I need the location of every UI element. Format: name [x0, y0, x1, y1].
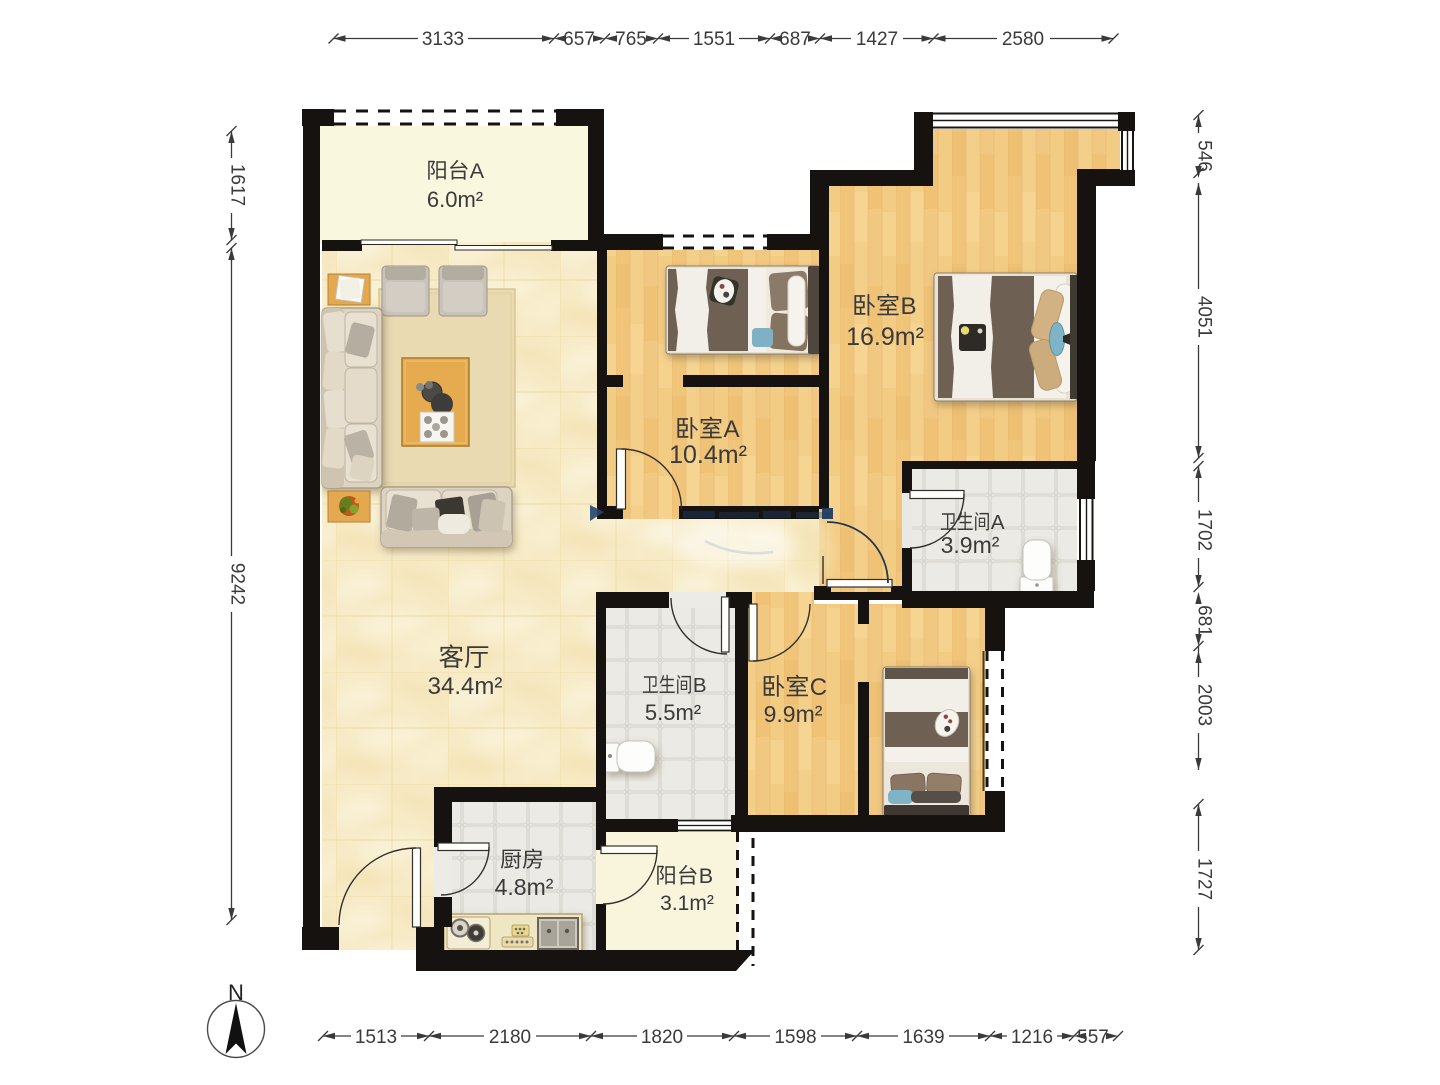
svg-text:A: A: [724, 416, 740, 443]
svg-text:A: A: [991, 511, 1005, 534]
svg-text:1820: 1820: [641, 1027, 683, 1048]
svg-text:546: 546: [1194, 140, 1215, 172]
svg-text:2580: 2580: [1002, 29, 1044, 50]
svg-text:1427: 1427: [856, 29, 898, 50]
svg-text:5.5m²: 5.5m²: [645, 700, 701, 725]
svg-text:1702: 1702: [1194, 509, 1215, 551]
svg-text:6.0m²: 6.0m²: [427, 187, 483, 212]
svg-text:765: 765: [615, 29, 647, 50]
svg-text:681: 681: [1194, 605, 1215, 637]
svg-text:1727: 1727: [1194, 858, 1215, 900]
svg-text:1551: 1551: [693, 29, 735, 50]
svg-text:687: 687: [779, 29, 811, 50]
svg-text:9242: 9242: [227, 563, 248, 605]
svg-text:2180: 2180: [489, 1027, 531, 1048]
svg-text:4051: 4051: [1194, 296, 1215, 338]
svg-text:1617: 1617: [227, 164, 248, 206]
svg-text:1598: 1598: [774, 1027, 816, 1048]
svg-text:1216: 1216: [1011, 1027, 1053, 1048]
svg-text:4.8m²: 4.8m²: [495, 874, 554, 900]
svg-text:B: B: [699, 864, 713, 888]
svg-text:1513: 1513: [355, 1027, 397, 1048]
svg-text:A: A: [470, 159, 485, 183]
svg-text:34.4m²: 34.4m²: [428, 673, 503, 700]
svg-text:B: B: [901, 293, 917, 320]
svg-text:3.1m²: 3.1m²: [660, 892, 714, 915]
svg-text:557: 557: [1077, 1027, 1109, 1048]
svg-text:2003: 2003: [1194, 684, 1215, 726]
svg-text:657: 657: [563, 29, 595, 50]
svg-text:10.4m²: 10.4m²: [669, 441, 747, 469]
svg-text:C: C: [810, 674, 827, 701]
svg-text:B: B: [693, 674, 707, 697]
svg-text:9.9m²: 9.9m²: [764, 701, 823, 727]
svg-text:3.9m²: 3.9m²: [941, 532, 1000, 558]
svg-text:1639: 1639: [902, 1027, 944, 1048]
svg-text:16.9m²: 16.9m²: [846, 323, 924, 351]
svg-text:3133: 3133: [422, 29, 464, 50]
